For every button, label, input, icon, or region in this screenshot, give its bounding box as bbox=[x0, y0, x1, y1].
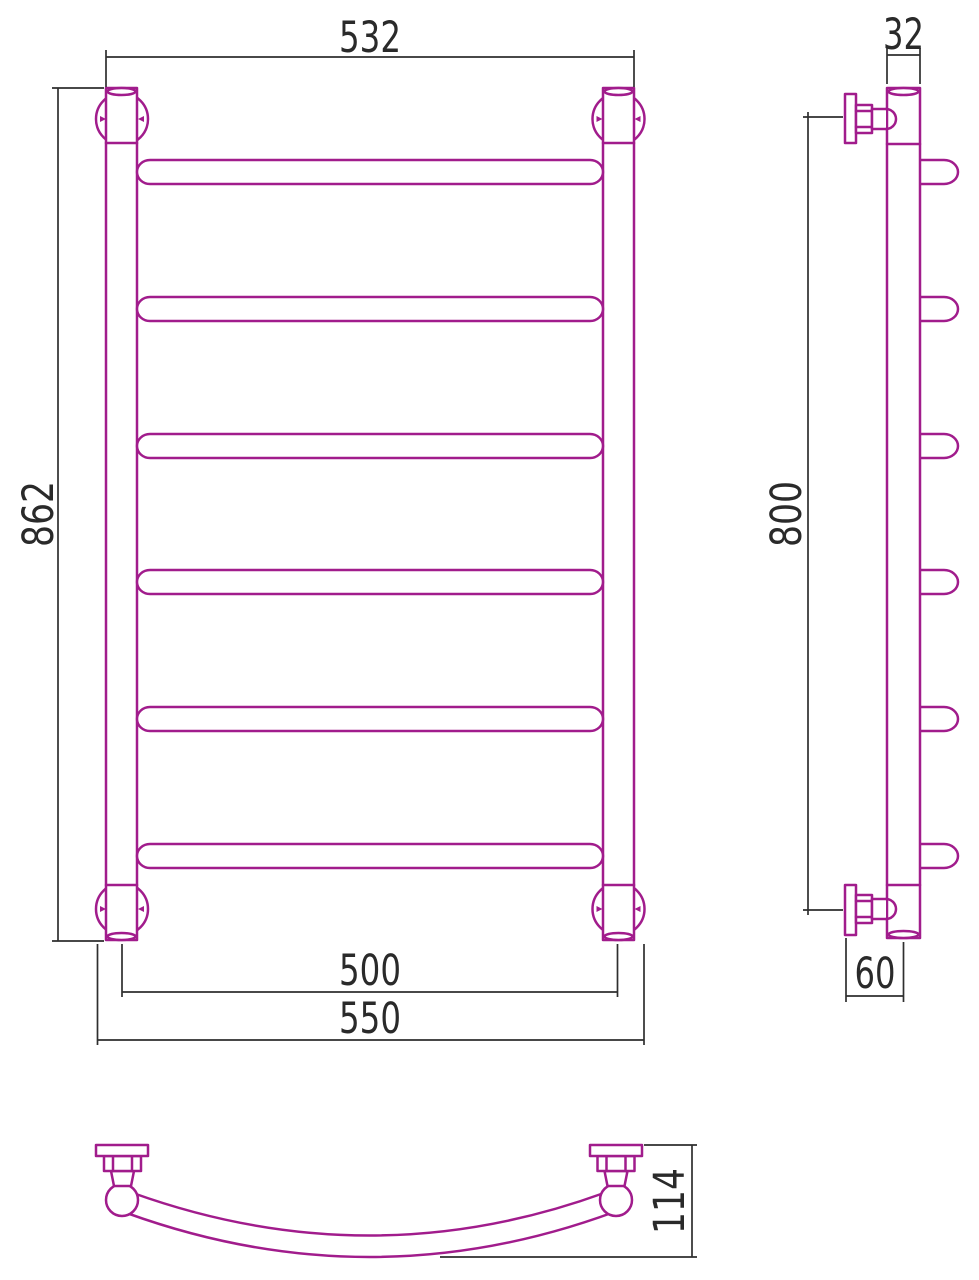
post-section-right bbox=[600, 1184, 632, 1216]
tube-cap bbox=[889, 931, 919, 938]
side-view bbox=[845, 88, 958, 938]
technical-drawing: 532 862 500 550 32 800 60 114 bbox=[0, 0, 979, 1280]
bracket-hex-nut bbox=[856, 105, 872, 133]
rung-stub bbox=[920, 844, 958, 868]
dimensions: 532 862 500 550 32 800 60 114 bbox=[14, 10, 924, 1257]
bracket-neck bbox=[872, 899, 886, 919]
rung bbox=[137, 434, 603, 458]
rung bbox=[137, 160, 603, 184]
dim-label-wall-offset: 60 bbox=[855, 949, 896, 999]
bottom-view bbox=[96, 1145, 642, 1257]
rung-stub bbox=[920, 297, 958, 321]
dim-label-overall-width: 550 bbox=[339, 994, 401, 1044]
tube bbox=[887, 88, 920, 938]
rung-stub bbox=[920, 570, 958, 594]
bracket-neck bbox=[605, 1171, 628, 1186]
rung-stub bbox=[920, 707, 958, 731]
dim-label-axis-width: 500 bbox=[339, 946, 401, 996]
post-cap bbox=[108, 88, 136, 95]
tube-cap bbox=[889, 88, 919, 95]
post-right bbox=[603, 88, 634, 940]
front-view bbox=[96, 88, 645, 940]
rung bbox=[137, 707, 603, 731]
post-section-left bbox=[106, 1184, 138, 1216]
rung bbox=[137, 297, 603, 321]
post-left bbox=[106, 88, 137, 940]
dim-label-top-width: 532 bbox=[339, 13, 401, 63]
rung bbox=[137, 570, 603, 594]
drawing-canvas: 532 862 500 550 32 800 60 114 bbox=[0, 0, 979, 1280]
post-cap bbox=[605, 88, 633, 95]
curved-rung-inner-edge bbox=[133, 1193, 604, 1236]
dim-label-arc-depth: 114 bbox=[645, 1168, 695, 1234]
dim-label-mount-spacing: 800 bbox=[762, 481, 812, 547]
bracket-hex-nut bbox=[104, 1156, 141, 1171]
bracket-flange bbox=[96, 1145, 148, 1156]
rung bbox=[137, 844, 603, 868]
bracket-flange bbox=[845, 94, 856, 143]
bracket-neck bbox=[872, 109, 886, 129]
bracket-hex-nut bbox=[598, 1156, 635, 1171]
bracket-flange bbox=[845, 885, 856, 935]
rung-stub bbox=[920, 434, 958, 458]
post-cap bbox=[108, 933, 136, 940]
bracket-flange bbox=[590, 1145, 642, 1156]
bracket-hex-nut bbox=[856, 895, 872, 923]
post-cap bbox=[605, 933, 633, 940]
rung-stub bbox=[920, 160, 958, 184]
bracket-neck bbox=[111, 1171, 134, 1186]
curved-rung-outer-edge bbox=[108, 1206, 630, 1257]
dim-label-height: 862 bbox=[14, 481, 64, 547]
dim-label-pipe-diameter: 32 bbox=[883, 10, 924, 60]
